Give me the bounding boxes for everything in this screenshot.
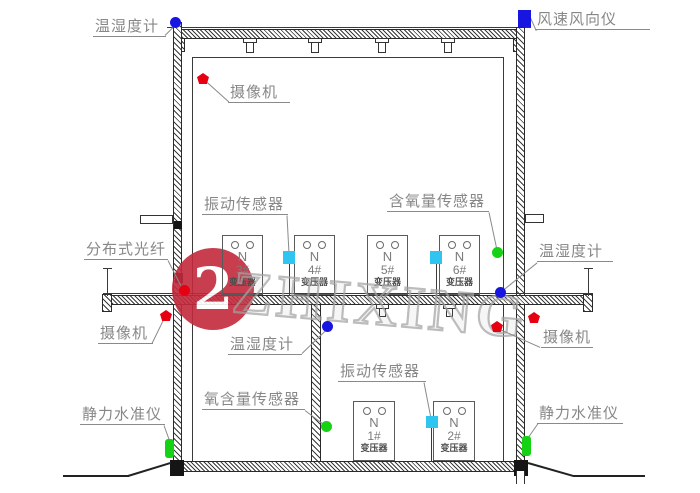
transformer-number: 6# [453,264,466,277]
transformer-terminals [231,241,254,249]
right-wall-below-slab [516,471,525,484]
label-camera-top: 摄像机 [228,85,290,103]
transformer-number: 1# [367,430,380,443]
label-temp-humidity-basement: 温湿度计 [228,337,302,355]
camera-marker-mid-left [160,310,172,321]
transformer-terminals [443,407,466,415]
leader-line [424,382,432,418]
label-vibration-basement: 振动传感器 [338,364,426,382]
leader-line [205,80,229,102]
mid-floor-endcap-right [583,294,593,312]
vibration-marker-gf-2 [430,251,442,264]
roof-beam-stem [378,42,386,53]
ground-line-left [63,475,129,477]
temp-humidity-marker-basement [322,321,333,332]
ground-slope-right [528,462,574,477]
label-level-gauge-left: 静力水准仪 [80,407,165,425]
camera-marker-mid-right-outer [528,312,540,323]
wall-bracket-right [525,214,544,223]
oxygen-marker-basement [321,421,332,432]
leader-line [164,425,170,439]
transformer-1: N 1# 变压器 [353,401,395,461]
transformer-name: 变压器 [440,443,467,453]
transformer-terminals [448,241,471,249]
footing-node-left [170,460,184,476]
vibration-marker-gf-1 [283,251,295,264]
transformer-terminals [303,241,326,249]
transformer-number: 2# [447,430,460,443]
leader-line [152,318,165,344]
label-level-gauge-right: 静力水准仪 [537,406,623,424]
endcap-post-right [588,269,589,296]
label-oxygen-basement: 氧含量传感器 [202,392,305,410]
transformer-n: N [449,416,458,430]
label-vibration-gf: 振动传感器 [202,197,288,215]
endcap-post-left [107,269,108,296]
transformer-n: N [383,250,392,264]
label-temp-humidity-top: 温湿度计 [93,19,166,37]
ground-line-right [573,475,645,477]
label-camera-mid-right: 摄像机 [541,330,593,348]
leader-line [529,423,539,437]
right-wall [516,27,525,463]
level-gauge-marker-right [522,436,531,456]
left-wall [173,22,182,463]
transformer-terminals [363,407,386,415]
endcap-post-tick-left [103,268,112,269]
diagram-canvas: 2 ZHIXING N 3# 变压器 N 4# 变压器 N 5# 变压器 N 6… [0,0,700,493]
transformer-n: N [369,416,378,430]
wall-bracket-left [140,215,173,224]
roof-top-line [167,27,531,28]
roof-beam-stem [311,42,319,53]
label-oxygen-gf: 含氧量传感器 [387,194,489,212]
oxygen-marker-gf [492,247,503,258]
label-temp-humidity-right: 温湿度计 [537,244,613,262]
transformer-terminals [376,241,399,249]
temp-humidity-marker-right [495,287,506,298]
transformer-n: N [455,250,464,264]
leader-line [489,212,498,250]
roof-beam-stem [444,42,452,53]
leader-line [287,215,290,251]
wind-sensor-marker [518,10,531,27]
sensor-stand [431,428,432,462]
inner-wall-line-right-upper [503,57,504,296]
wall-mount-block [174,221,182,229]
label-wind-sensor: 风速风向仪 [535,12,650,30]
roof-beam-stem [246,42,254,53]
label-camera-mid-left: 摄像机 [98,326,153,344]
label-fiber: 分布式光纤 [84,242,168,260]
endcap-post-tick-right [584,268,593,269]
transformer-name: 变压器 [360,443,387,453]
inner-wall-line-left-lower [192,305,193,463]
mid-floor-endcap-left [102,294,112,312]
ceiling-line [193,57,503,58]
transformer-n: N [310,250,319,264]
camera-marker-top [197,73,209,84]
bottom-slab [173,461,527,472]
vibration-marker-basement [426,416,438,428]
transformer-2: N 2# 变压器 [433,401,475,461]
roof-slab [173,29,525,39]
level-gauge-marker-left [165,439,174,458]
temp-humidity-marker-top [170,17,181,28]
ground-slope-left [128,462,172,477]
fiber-marker [179,285,190,296]
